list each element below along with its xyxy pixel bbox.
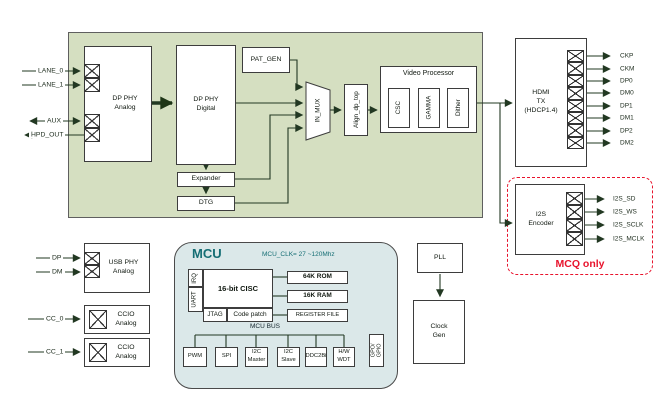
spi-label: SPI	[222, 353, 231, 361]
crosspoint-icon	[567, 112, 584, 124]
irq-label: IRQ	[192, 273, 199, 284]
crosspoint-icon	[89, 310, 107, 329]
crosspoint-icon	[84, 64, 100, 78]
crosspoint-icon	[567, 137, 584, 149]
crosspoint-icon	[567, 62, 584, 74]
dp-pin-label: DP	[50, 255, 63, 262]
dp-phy-digital-label: DP PHY Digital	[193, 96, 218, 114]
crosspoint-icon	[84, 78, 100, 92]
dtg-label: DTG	[199, 199, 213, 208]
crosspoint-icon	[84, 128, 100, 142]
cc0-pin-label: CC_0	[44, 316, 65, 323]
aux-pin-label: AUX	[45, 118, 63, 125]
block-diagram: DP PHY Analog LANE_0 LANE_1 AUX HPD_OUT …	[0, 0, 665, 407]
crosspoint-icon	[84, 265, 100, 278]
jtag-label: JTAG	[207, 311, 222, 319]
i2c-master-block: I2C Master	[245, 347, 268, 367]
ram-block: 16K RAM	[287, 290, 348, 303]
crosspoint-icon	[567, 87, 584, 99]
rom-label: 64K ROM	[303, 273, 332, 281]
ddc2bi-block: DDC2Bi	[305, 347, 327, 367]
mcu-clock-note: MCU_CLK= 27 ~120Mhz	[262, 251, 335, 258]
pwm-block: PWM	[183, 347, 207, 367]
crosspoint-icon	[567, 75, 584, 87]
hdmi-out-dp2: DP2	[620, 128, 633, 135]
code-patch-label: Code patch	[233, 311, 266, 319]
clock-gen-label: Clock Gen	[431, 323, 448, 341]
ccio-analog-1-label: CCIO Analog	[115, 344, 136, 362]
ddc2bi-label: DDC2Bi	[306, 353, 327, 361]
irq-block: IRQ	[188, 269, 203, 287]
hdmi-out-dp1: DP1	[620, 103, 633, 110]
pwm-label: PWM	[188, 353, 202, 361]
uart-label: UART	[192, 291, 199, 307]
pll-block: PLL	[417, 243, 463, 273]
mcq-only-label: MCQ only	[507, 258, 653, 270]
gamma-label: GAMMA	[425, 96, 432, 120]
i2c-master-label: I2C Master	[248, 349, 266, 364]
i2s-out-ws: I2S_WS	[613, 209, 637, 216]
video-processor-label: Video Processor	[403, 69, 454, 78]
i2c-slave-block: I2C Slave	[277, 347, 300, 367]
hdmi-out-ckm: CKM	[620, 66, 634, 73]
hdmi-out-dp0: DP0	[620, 78, 633, 85]
i2s-encoder-label: I2S Encoder	[528, 211, 553, 229]
dither-block: Dither	[447, 88, 469, 128]
crosspoint-icon	[566, 232, 583, 245]
pat-gen-block: PAT_GEN	[242, 47, 290, 73]
ccio-analog-0-label: CCIO Analog	[115, 311, 136, 329]
i2s-out-sd: I2S_SD	[613, 196, 635, 203]
gpo-gpio-block: GPO/ GPIO	[369, 334, 384, 367]
jtag-block: JTAG	[203, 308, 227, 322]
pll-label: PLL	[434, 254, 446, 263]
align-dp-top-label: Align_dp_top	[352, 92, 359, 129]
crosspoint-icon	[84, 114, 100, 128]
crosspoint-icon	[566, 205, 583, 218]
hw-wdt-block: H/W WDT	[333, 347, 355, 367]
dither-label: Dither	[454, 100, 461, 117]
gpo-gpio-label: GPO/ GPIO	[370, 344, 383, 358]
clock-gen-block: Clock Gen	[413, 300, 465, 364]
hdmi-out-dm0: DM0	[620, 90, 634, 97]
align-dp-top-block: Align_dp_top	[344, 84, 368, 136]
dp-phy-analog-label: DP PHY Analog	[112, 95, 137, 113]
register-file-block: REGISTER FILE	[287, 309, 348, 322]
in-mux-label: IN_MUX	[314, 99, 321, 123]
csc-block: CSC	[388, 88, 410, 128]
crosspoint-icon	[566, 192, 583, 205]
usb-phy-analog-label: USB PHY Analog	[109, 259, 139, 277]
crosspoint-icon	[84, 252, 100, 265]
mcu-bus-label: MCU BUS	[235, 323, 295, 330]
spi-block: SPI	[215, 347, 238, 367]
cisc-label: 16-bit CISC	[218, 284, 258, 294]
cisc-block: 16-bit CISC	[203, 269, 273, 308]
crosspoint-icon	[566, 219, 583, 232]
ram-label: 16K RAM	[303, 292, 332, 300]
expander-label: Expander	[191, 175, 220, 184]
hw-wdt-label: H/W WDT	[337, 349, 350, 364]
register-file-label: REGISTER FILE	[296, 312, 340, 320]
i2s-out-sclk: I2S_SCLK	[613, 222, 643, 229]
hdmi-tx-label: HDMI TX (HDCP1.4)	[524, 89, 557, 115]
i2s-out-mclk: I2S_MCLK	[613, 236, 644, 243]
hdmi-out-dm2: DM2	[620, 140, 634, 147]
lane1-pin-label: LANE_1	[36, 82, 65, 89]
hdmi-out-ckp: CKP	[620, 53, 633, 60]
crosspoint-icon	[89, 343, 107, 362]
hpd-out-pin-label: HPD_OUT	[29, 132, 65, 139]
dp-phy-digital-block: DP PHY Digital	[176, 45, 236, 165]
crosspoint-icon	[567, 124, 584, 136]
hdmi-out-dm1: DM1	[620, 115, 634, 122]
crosspoint-icon	[567, 100, 584, 112]
lane0-pin-label: LANE_0	[36, 68, 65, 75]
rom-block: 64K ROM	[287, 271, 348, 284]
i2c-slave-label: I2C Slave	[281, 349, 296, 364]
uart-block: UART	[188, 287, 203, 312]
dm-pin-label: DM	[50, 269, 65, 276]
gamma-block: GAMMA	[418, 88, 440, 128]
pat-gen-label: PAT_GEN	[251, 56, 282, 65]
cc1-pin-label: CC_1	[44, 349, 65, 356]
in-mux-block: IN_MUX	[306, 82, 330, 140]
mcu-title: MCU	[192, 246, 222, 261]
crosspoint-icon	[567, 50, 584, 62]
dtg-block: DTG	[177, 196, 235, 211]
code-patch-block: Code patch	[227, 308, 273, 322]
csc-label: CSC	[395, 101, 402, 114]
expander-block: Expander	[177, 172, 235, 187]
